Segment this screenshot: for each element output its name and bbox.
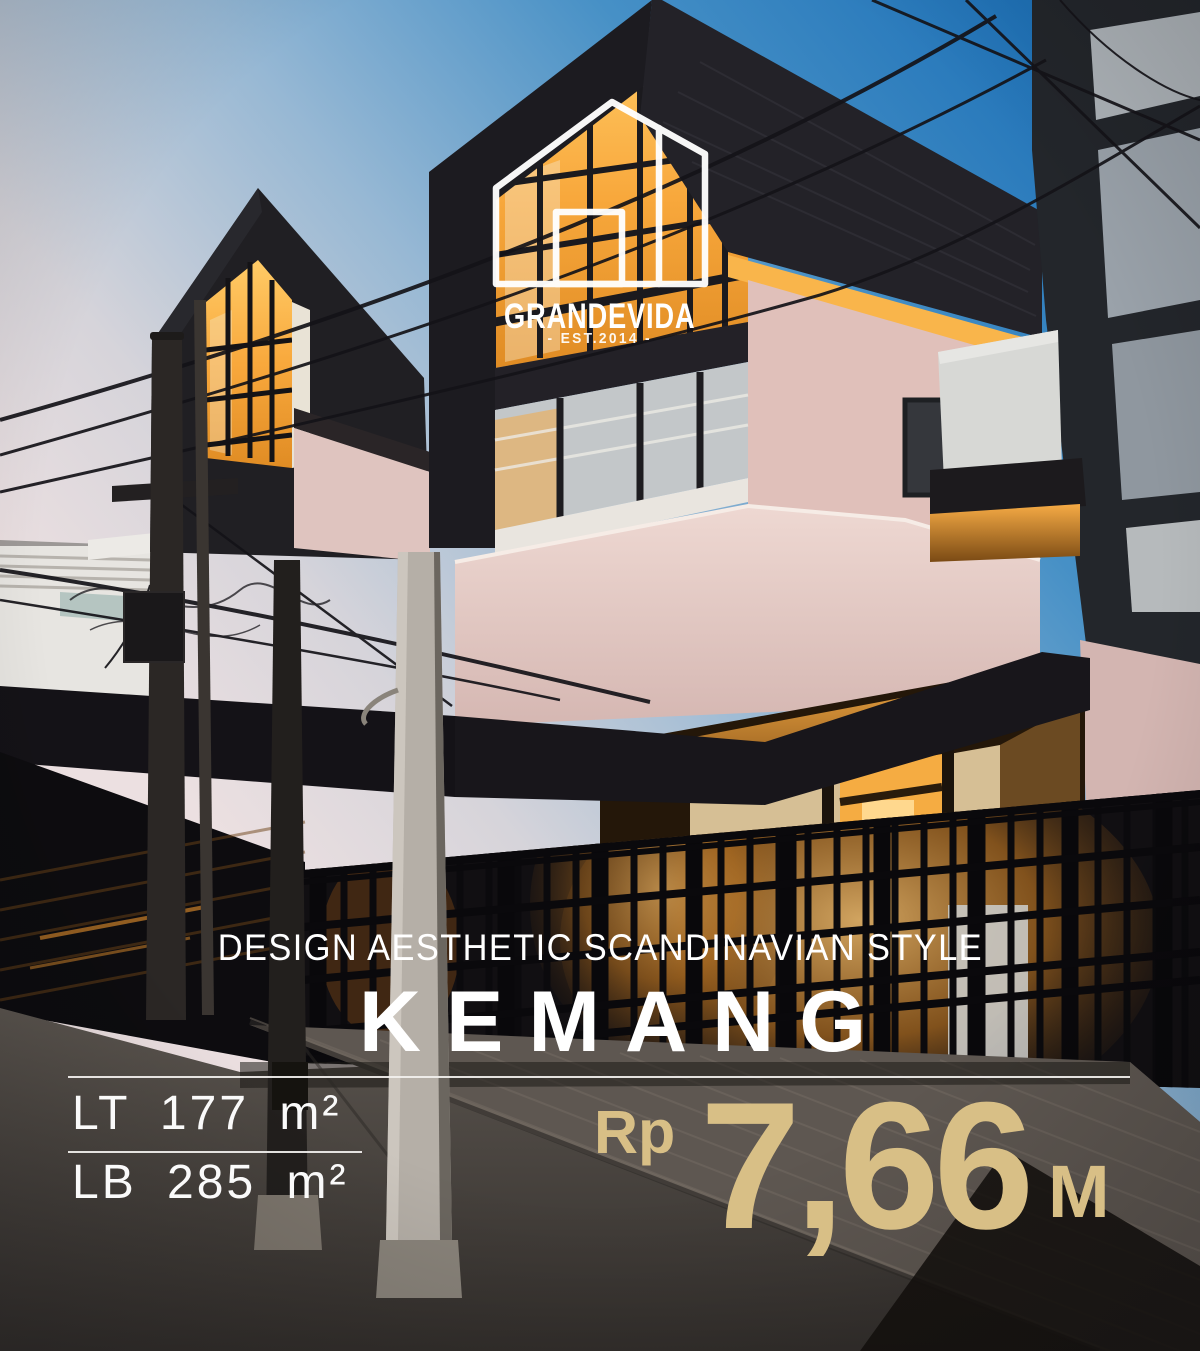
brand-name: GRANDEVIDA bbox=[0, 299, 1200, 334]
price-amount: 7,66 bbox=[700, 1076, 1028, 1257]
divider-mid bbox=[68, 1151, 362, 1153]
brand-established-text: - EST.2014 - bbox=[548, 331, 652, 346]
price-currency: Rp bbox=[594, 1102, 675, 1163]
land-area: LT 177 m² bbox=[72, 1090, 341, 1138]
brand-established: - EST.2014 - bbox=[0, 331, 1200, 346]
brand-name-text: GRANDEVIDA bbox=[504, 299, 695, 334]
location-title: KEMANG bbox=[0, 979, 1200, 1065]
building-area: LB 285 m² bbox=[72, 1159, 348, 1207]
price-unit: M bbox=[1048, 1155, 1110, 1229]
poster: GRANDEVIDA - EST.2014 - DESIGN AESTHETIC… bbox=[0, 0, 1200, 1351]
tagline: DESIGN AESTHETIC SCANDINAVIAN STYLE bbox=[0, 929, 1200, 966]
tagline-text: DESIGN AESTHETIC SCANDINAVIAN STYLE bbox=[217, 929, 982, 966]
